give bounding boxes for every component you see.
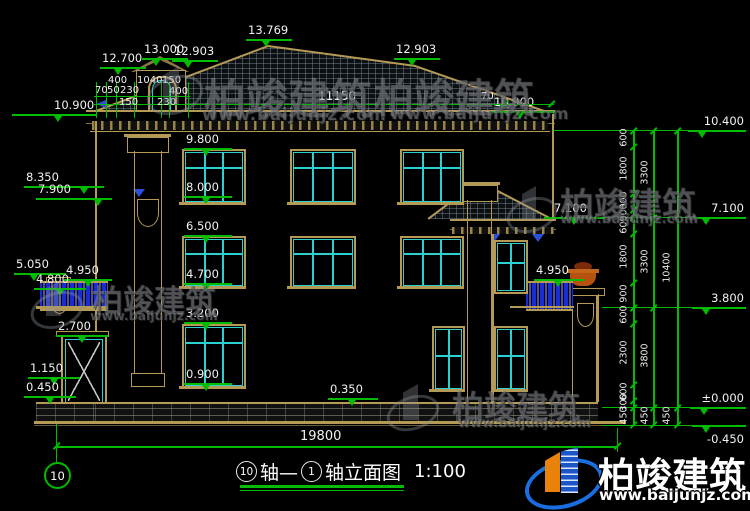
level-value: 10.900	[54, 99, 94, 112]
watermark-url: www.baijunjz.com	[90, 308, 218, 323]
window-sill	[179, 386, 245, 389]
level-value: 5.050	[16, 258, 49, 271]
window-3f-2	[290, 149, 356, 205]
door-leaf-diagonals	[68, 342, 100, 401]
dim-value: 2300	[619, 333, 630, 373]
level-value: 9.800	[186, 133, 219, 146]
watermark-logo-icon	[522, 186, 536, 220]
brand-logo-building-icon	[545, 452, 560, 492]
level-value: 0.450	[26, 381, 59, 394]
window-sill	[397, 286, 463, 289]
eave-lip	[90, 131, 550, 132]
dim-value: 150	[119, 97, 138, 108]
axis-number: 10	[50, 469, 65, 483]
level-value: 7.900	[38, 183, 71, 196]
window-sill	[179, 202, 245, 205]
axis-circle-end: 1	[301, 461, 322, 482]
title-scale: 1:100	[414, 461, 466, 482]
watermark-url: www.baijunjz.com	[458, 416, 591, 431]
window-sill	[287, 202, 355, 205]
dim-value: 3300	[640, 242, 651, 282]
level-value: 0.900	[186, 368, 219, 381]
title-underline-2	[240, 490, 404, 491]
dim-value: 70	[95, 85, 108, 96]
wing-pillar-ornament	[577, 303, 594, 327]
pilaster-right-shaft	[467, 200, 492, 402]
level-value: 12.903	[174, 45, 214, 58]
dim-chain-line-2	[653, 131, 655, 426]
watermark-url: www.baijunjz.com	[390, 104, 569, 123]
pilaster-left-ornament	[137, 199, 159, 227]
window-sill	[287, 286, 355, 289]
title-underline	[240, 485, 404, 488]
level-value: 7.100	[711, 202, 744, 215]
title-text: 轴立面图	[325, 458, 401, 485]
watermark-url: www.baijunjz.com	[560, 211, 698, 227]
level-value: 3.800	[711, 292, 744, 305]
cad-elevation-drawing: 10.900 8.350 7.900 5.050 4.950 4.800 2.7…	[0, 0, 750, 511]
dim-value: 1800	[619, 237, 630, 277]
level-value: 12.903	[396, 43, 436, 56]
window-3f-3	[400, 149, 464, 205]
brand-url: www.baijunjz.com	[599, 486, 750, 504]
watermark-logo-icon	[403, 384, 418, 420]
gutter-bracket-icon	[532, 234, 544, 242]
level-value: ±0.000	[701, 392, 744, 405]
level-value: 12.700	[102, 52, 142, 65]
window-sill	[397, 202, 463, 205]
level-value: 8.000	[186, 181, 219, 194]
axis-number: 1	[308, 466, 315, 478]
balcony-slab-right	[510, 306, 574, 308]
dim-value: 450	[619, 396, 630, 436]
pilaster-left-shaft	[134, 151, 162, 373]
drawing-title: 10 轴— 1 轴立面图 1:100	[236, 458, 466, 485]
axis-bubble-10: 10	[44, 462, 71, 489]
window-2f-2	[290, 236, 356, 289]
watermark-url: www.baijunjz.com	[202, 105, 387, 124]
level-value: 4.800	[36, 273, 69, 286]
level-value: 13.769	[248, 24, 288, 37]
dim-chain-line-3	[677, 131, 679, 426]
dim-ext-line	[602, 307, 696, 308]
dim-value-total: 19800	[300, 430, 341, 443]
dim-value: 10400	[662, 248, 673, 288]
level-value: 6.500	[186, 220, 219, 233]
level-value: 1.150	[30, 362, 63, 375]
level-value: 0.350	[330, 383, 363, 396]
level-value: 4.950	[536, 264, 569, 277]
dim-value: 230	[120, 85, 139, 96]
title-text: 轴—	[260, 458, 298, 485]
dim-value: 600	[619, 295, 630, 335]
window-2f-3	[400, 236, 464, 289]
dim-value: 50	[107, 85, 120, 96]
dim-value: 450	[640, 396, 651, 436]
axis-number: 10	[240, 466, 253, 478]
level-value: 10.400	[704, 115, 744, 128]
pilaster-left-base	[131, 373, 165, 387]
axis-circle-start: 10	[236, 461, 257, 482]
brand-logo-building-icon	[561, 447, 578, 493]
dim-line-total	[56, 446, 618, 448]
dim-value: 450	[662, 396, 673, 436]
stone-base-annex	[36, 402, 95, 423]
dim-value: 3800	[640, 336, 651, 376]
window-wing-2f	[494, 240, 528, 294]
level-value: -0.450	[707, 433, 744, 446]
